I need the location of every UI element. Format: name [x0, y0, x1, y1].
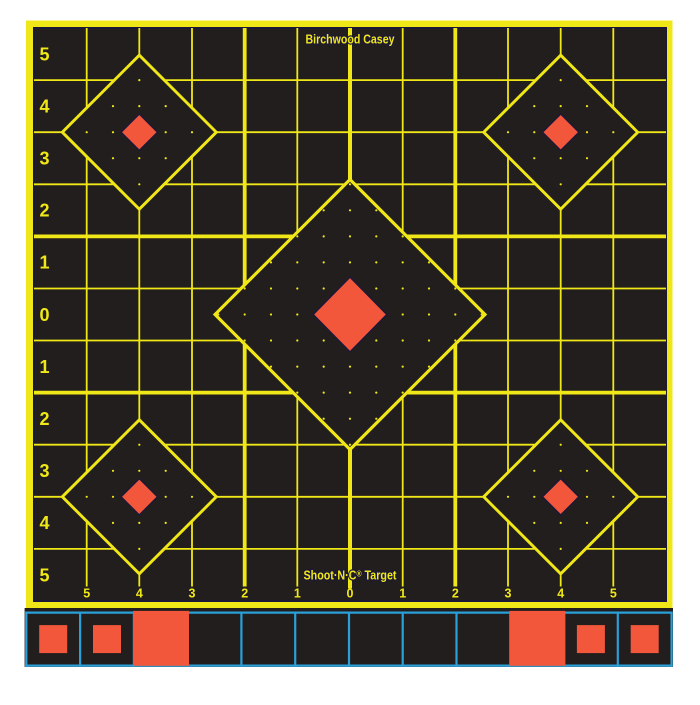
svg-text:4: 4: [557, 587, 564, 601]
svg-text:0: 0: [347, 587, 354, 601]
svg-text:1: 1: [39, 253, 49, 273]
svg-text:4: 4: [136, 587, 143, 601]
svg-text:2: 2: [452, 587, 459, 601]
svg-text:5: 5: [610, 587, 617, 601]
svg-text:2: 2: [39, 409, 49, 429]
svg-text:3: 3: [39, 461, 49, 481]
svg-text:0: 0: [39, 305, 49, 325]
svg-text:5: 5: [39, 565, 49, 585]
svg-text:2: 2: [39, 201, 49, 221]
svg-text:3: 3: [505, 587, 512, 601]
svg-text:5: 5: [39, 44, 49, 64]
svg-text:5: 5: [83, 587, 90, 601]
svg-text:1: 1: [399, 587, 406, 601]
svg-text:2: 2: [241, 587, 248, 601]
svg-text:3: 3: [39, 149, 49, 169]
svg-text:Birchwood Casey: Birchwood Casey: [306, 33, 395, 47]
svg-text:4: 4: [39, 513, 49, 533]
svg-text:Shoot·N·C® Target: Shoot·N·C® Target: [304, 569, 398, 583]
svg-text:4: 4: [39, 96, 49, 116]
svg-text:1: 1: [39, 357, 49, 377]
svg-text:3: 3: [189, 587, 196, 601]
svg-text:1: 1: [294, 587, 301, 601]
